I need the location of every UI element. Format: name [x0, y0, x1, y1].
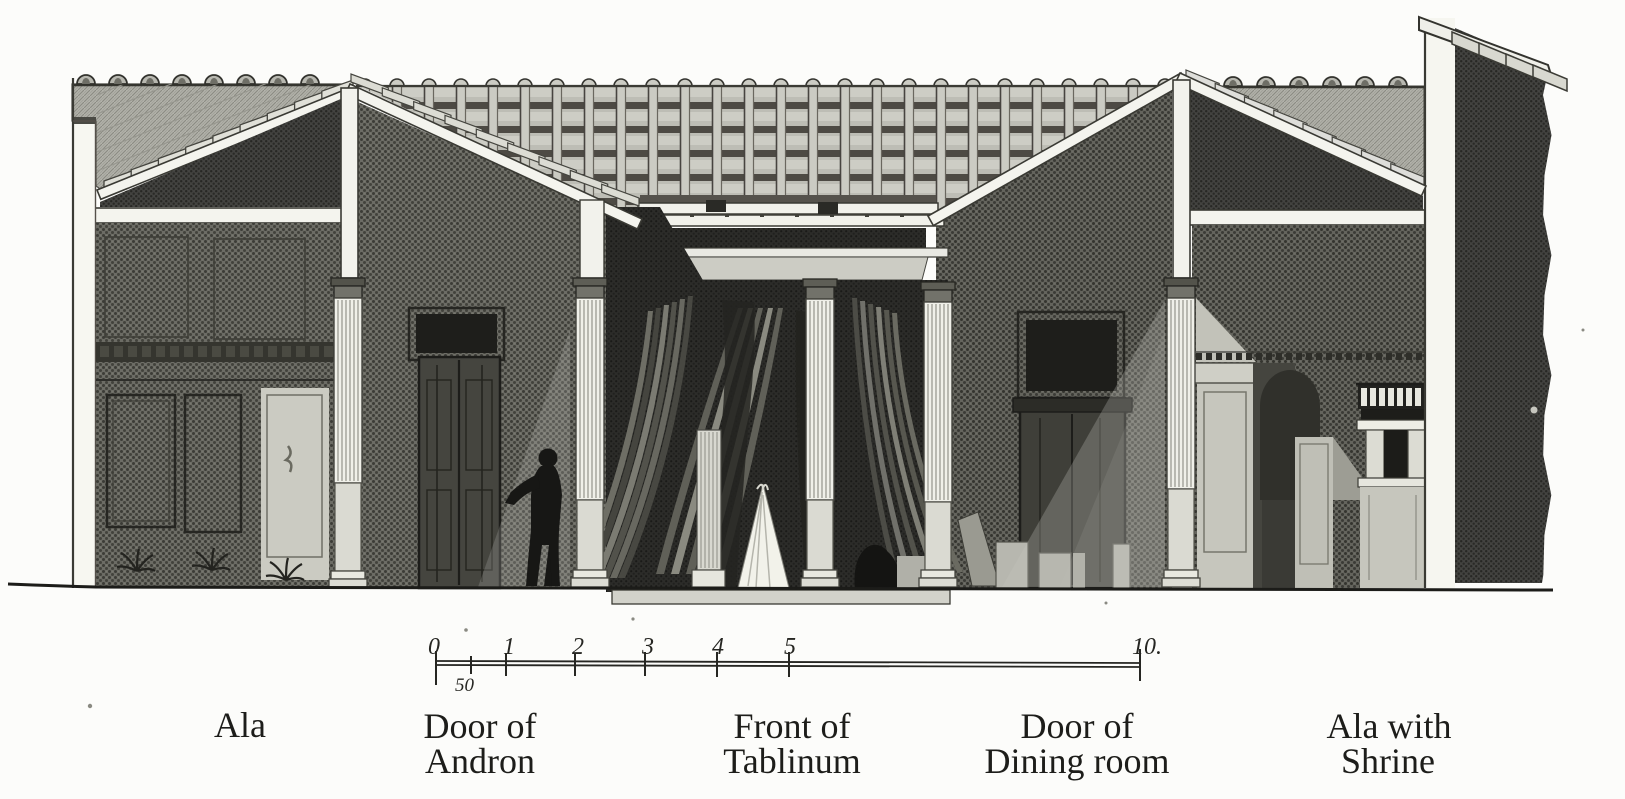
svg-text:Door of: Door of [1021, 706, 1134, 746]
svg-text:Shrine: Shrine [1341, 741, 1435, 781]
svg-text:10.: 10. [1132, 634, 1162, 660]
svg-text:4: 4 [712, 634, 724, 660]
svg-text:Dining room: Dining room [985, 741, 1170, 781]
svg-text:Tablinum: Tablinum [723, 741, 860, 781]
svg-text:Front of: Front of [734, 706, 851, 746]
svg-text:5: 5 [784, 634, 796, 660]
svg-text:Ala with: Ala with [1327, 706, 1452, 746]
svg-text:2: 2 [572, 634, 584, 660]
svg-text:50: 50 [455, 675, 475, 696]
svg-text:Ala: Ala [214, 705, 266, 745]
svg-text:3: 3 [641, 634, 654, 660]
svg-text:Door of: Door of [424, 706, 537, 746]
svg-text:Andron: Andron [425, 741, 535, 781]
svg-text:0: 0 [428, 634, 440, 660]
svg-text:1: 1 [503, 634, 515, 660]
